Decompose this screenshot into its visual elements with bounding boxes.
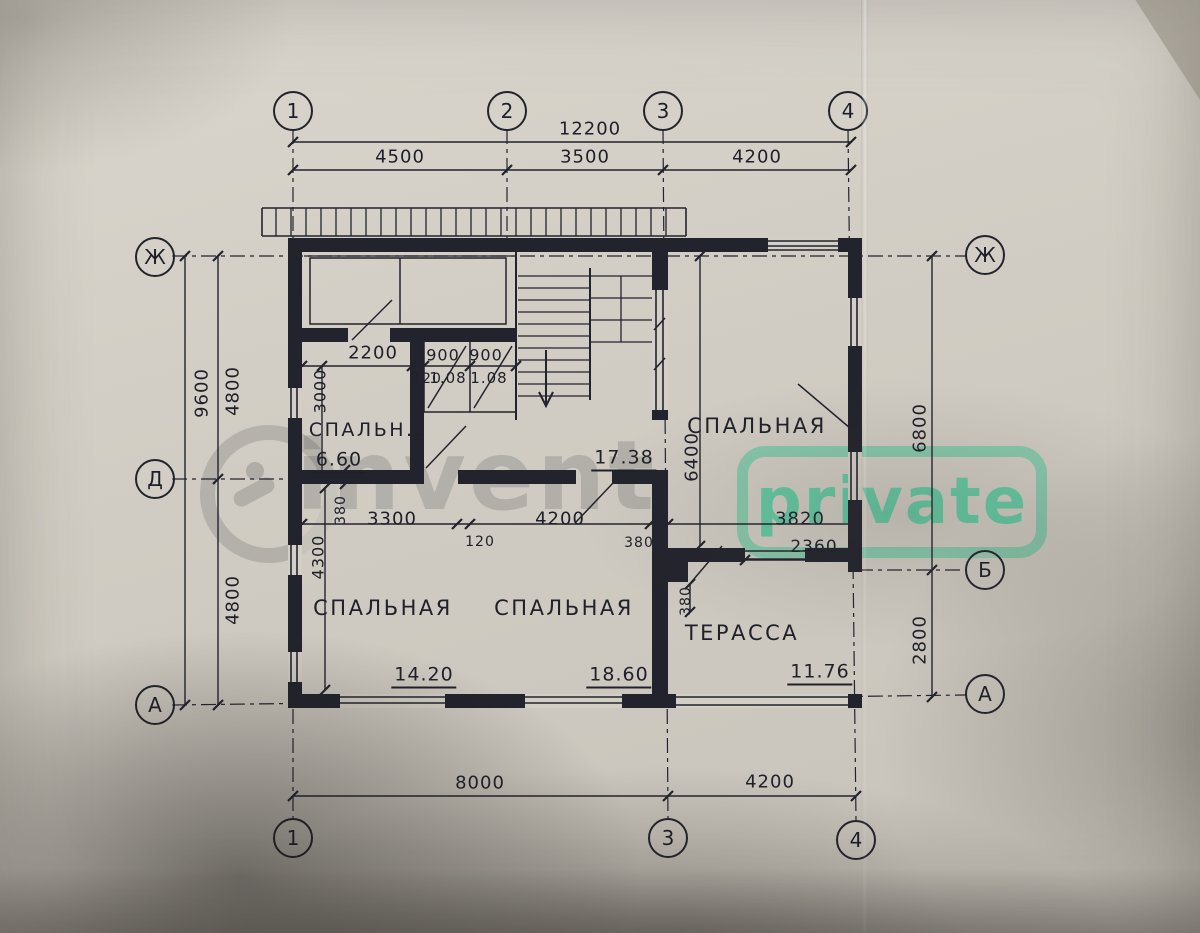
dim-bottom-3-4: 4200 xyxy=(745,772,795,793)
axis-bubble-b-right: Б xyxy=(965,550,1005,590)
axis-bubble-1-top: 1 xyxy=(273,91,313,131)
axis-bubble-2-top: 2 xyxy=(487,91,527,131)
room-label-terrace: ТЕРАССА xyxy=(685,621,799,645)
axis-bubble-zh-left: Ж xyxy=(135,237,175,277)
dim-left-total: 9600 xyxy=(192,368,213,418)
dim-wall-mid-380: 380 xyxy=(333,495,349,525)
room-label-bedroom3: СПАЛЬНАЯ xyxy=(313,596,453,620)
dim-closet-left: 900 xyxy=(426,346,460,365)
dim-top-1-2: 4500 xyxy=(375,147,425,168)
dim-right-upper: 6800 xyxy=(910,403,931,453)
dim-bed1-height: 3000 xyxy=(311,369,330,414)
axis-label: 1 xyxy=(287,826,300,850)
axis-bubble-3-bottom: 3 xyxy=(648,818,688,858)
axis-label: 2 xyxy=(501,99,514,123)
dim-hall-width: 2200 xyxy=(348,343,398,364)
axis-bubble-1-bottom: 1 xyxy=(273,818,313,858)
door-swings xyxy=(352,300,850,586)
room-label-bedroom4: СПАЛЬНАЯ xyxy=(494,596,634,620)
room-label-bedroom2: СПАЛЬНАЯ xyxy=(687,414,827,438)
floor-plan-photo: invent private xyxy=(0,0,1200,933)
dim-top-2-3: 3500 xyxy=(560,147,610,168)
axis-label: Б xyxy=(978,558,992,582)
axis-label: А xyxy=(978,682,992,706)
axis-bubble-4-bottom: 4 xyxy=(836,820,876,860)
dim-left-lower: 4800 xyxy=(223,575,244,625)
dim-wall-120-mid: 120 xyxy=(465,534,495,550)
dim-terrace-door: 2360 xyxy=(790,537,837,557)
axis-label: А xyxy=(148,693,162,717)
dim-right-lower: 2800 xyxy=(910,615,931,665)
axis-bubble-4-top: 4 xyxy=(828,91,868,131)
dim-bottom-1-3: 8000 xyxy=(455,773,505,794)
dim-top-total: 12200 xyxy=(559,119,621,140)
axis-label: Ж xyxy=(974,243,996,267)
axis-label: 3 xyxy=(662,826,675,850)
dim-bed3-height: 4300 xyxy=(309,535,328,580)
area-label-bedroom2: 17.38 xyxy=(591,447,656,472)
dim-closet-right: 900 xyxy=(469,346,503,365)
axis-bubble-3-top: 3 xyxy=(643,91,683,131)
axis-label: 3 xyxy=(657,99,670,123)
dim-wall-380: 380 xyxy=(624,535,654,551)
axis-bubble-d-left: Д xyxy=(135,459,175,499)
area-closet-left: 1.08 xyxy=(429,369,466,387)
dim-bed2-height: 6400 xyxy=(682,432,703,482)
axis-bubble-zh-right: Ж xyxy=(965,235,1005,275)
axis-label: Д xyxy=(147,467,163,491)
dim-top-3-4: 4200 xyxy=(732,147,782,168)
room-label-bedroom1: СПАЛЬН.. xyxy=(309,419,423,441)
axis-label: 1 xyxy=(287,99,300,123)
pergola-hatch xyxy=(262,208,686,236)
area-label-bedroom3: 14.20 xyxy=(391,664,456,689)
staircase xyxy=(516,252,652,420)
area-label-terrace: 11.76 xyxy=(787,661,852,686)
area-label-bedroom4: 18.60 xyxy=(586,664,651,689)
axis-bubble-a-left: А xyxy=(135,685,175,725)
dim-terrace-width: 3820 xyxy=(775,509,825,530)
axis-bubble-a-right: А xyxy=(965,674,1005,714)
axis-label: 4 xyxy=(842,99,855,123)
dim-bed3-width: 3300 xyxy=(367,509,417,530)
dim-left-upper: 4800 xyxy=(223,366,244,416)
area-label-bedroom1: 6.60 xyxy=(313,449,365,474)
axis-label: 4 xyxy=(850,828,863,852)
dim-terrace-wall-380: 380 xyxy=(678,586,694,616)
area-closet-right: 1.08 xyxy=(470,369,507,387)
axis-label: Ж xyxy=(144,245,166,269)
dim-bed4-width: 4200 xyxy=(535,509,585,530)
